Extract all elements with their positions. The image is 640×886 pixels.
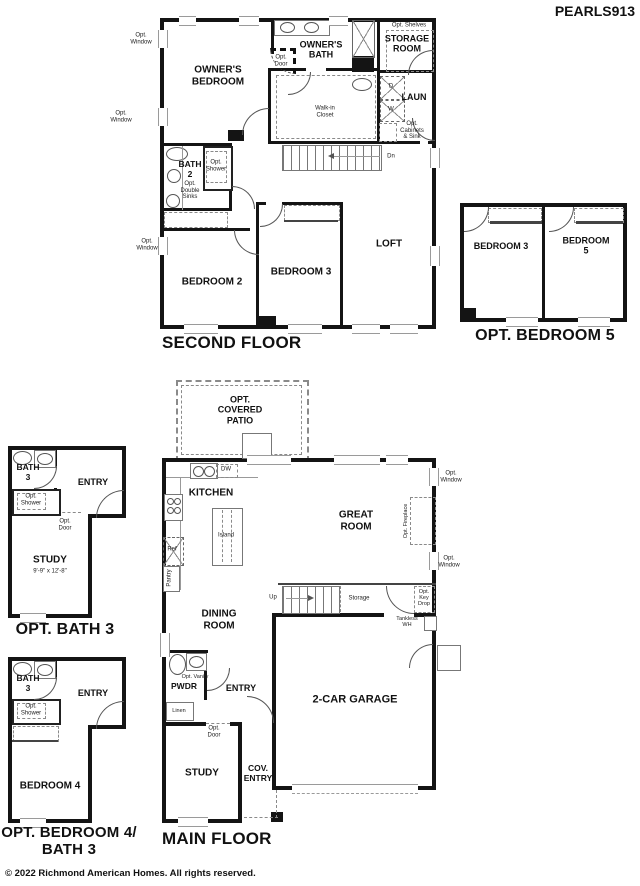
shower [352,20,375,58]
wall-chunk [256,316,276,325]
toilet [169,654,186,675]
floor-plan-sheet: PEARLS913 [0,0,640,886]
room-label-study: STUDY [185,767,219,779]
window [430,148,440,168]
room-label-entry: ENTRY [78,477,108,487]
window [178,817,208,827]
room-label-walk-in-closet: Walk-in Closet [315,105,335,118]
room-label-opt-covered-patio: OPT. COVERED PATIO [218,394,263,425]
garage-door-opening [292,784,418,794]
label-opt-window: Opt. Window [438,555,459,568]
room-label-bedroom-5: BEDROOM 5 [559,236,613,257]
door-arc [242,108,269,135]
wall-segment [160,18,164,329]
door-arc [464,207,489,232]
room-label-garage: 2-CAR GARAGE [313,694,398,707]
lite-segment [286,598,308,599]
door-arc [549,207,574,232]
thin-segment [490,221,542,224]
oval-segment [167,507,174,514]
plan-title: PEARLS913 [470,3,635,19]
wall-segment [428,141,436,144]
wall-segment [230,722,242,726]
door-arc [409,644,433,668]
room-label-owners-bedroom: OWNER'S BEDROOM [192,65,244,88]
lite-segment [334,156,380,157]
room-label-bedroom-3: BEDROOM 3 [474,241,529,251]
oval-segment [174,507,181,514]
room-label-bath-3: BATH 3 [17,463,40,483]
window [390,324,418,334]
opt-cabinets-outline [379,123,397,142]
bedroom2-closet [164,212,228,228]
wall-segment [164,208,232,211]
caption-opt-bedroom-4: OPT. BEDROOM 4/ BATH 3 [0,825,138,858]
door-arc [234,230,259,255]
window [158,237,168,255]
wall-segment [268,141,420,144]
room-label-owners-bath: OWNER'S BATH [300,40,343,61]
room-label-powder: PWDR [171,682,197,692]
caption-second-floor: SECOND FLOOR [162,333,301,353]
window [578,317,610,327]
room-label-loft: LOFT [376,238,402,250]
label-washer: W [388,107,394,114]
wall-segment [272,613,276,790]
caption-main-floor: MAIN FLOOR [162,829,272,849]
room-label-bath-3: BATH 3 [17,674,40,694]
sink [280,22,295,33]
cov-entry-dash [244,817,278,819]
wall-chunk [460,308,476,318]
window [430,246,440,266]
window [160,633,170,657]
dashv-segment [340,586,342,612]
window [334,455,380,465]
door-arc [260,204,283,227]
label-refrigerator: Ref [167,547,176,554]
window [158,108,168,126]
room-label-laundry: LAUN [402,92,427,102]
tankless-wh-box [424,616,437,631]
label-opt-shower: Opt. Shower [21,703,41,716]
wall-segment [88,725,92,823]
room-label-entry: ENTRY [78,688,108,698]
oval-segment [174,498,181,505]
label-opt-shower: Opt. Shower [21,493,41,506]
door-arc [386,586,414,614]
window [329,16,348,26]
wall-segment [256,202,259,325]
sink [166,194,180,208]
label-opt-fireplace: Opt. Fireplace [403,504,409,539]
label-opt-window: Opt. Window [440,470,461,483]
wall-segment [8,446,12,618]
label-opt-cabinets-sink: Opt. Cabinets & Sink [400,121,424,141]
room-label-kitchen: KITCHEN [189,487,233,499]
window [179,16,196,26]
label-dryer: D [389,84,393,91]
caption-opt-bath-3: OPT. BATH 3 [6,621,124,639]
window [429,468,439,486]
cov-entry-dash [276,790,278,818]
room-label-bedroom-3: BEDROOM 3 [271,266,332,278]
room-label-entry: ENTRY [226,683,256,693]
wall-segment [8,446,126,450]
thin-segment [284,220,338,222]
window [506,317,538,327]
window [158,30,168,48]
room-label-cov-entry: COV. ENTRY [244,764,273,784]
label-opt-window: Opt. Window [110,110,131,123]
room-label-bedroom-4: BEDROOM 4 [20,780,81,792]
window [352,324,380,334]
bedroom3-closet [284,205,340,221]
front-door-arc [96,490,124,518]
wall-segment [238,722,242,823]
room-label-bedroom-2: BEDROOM 2 [182,276,243,288]
room-label-great-room: GREAT ROOM [339,510,373,533]
wall-segment [88,514,92,618]
label-opt-vanity: Opt. Vanity [182,674,209,680]
patio-slider [247,455,291,465]
oval-segment [193,466,204,477]
label-down: Dn [387,154,395,161]
wall-segment [340,202,343,325]
caption-opt-bedroom-5: OPT. BEDROOM 5 [460,327,630,345]
label-up: Up [269,595,277,602]
garage-service-stoop [437,645,461,671]
wall-segment [162,722,206,726]
label-opt-shower: Opt. Shower [206,159,226,172]
label-storage: Storage [348,596,369,603]
label-linen: Linen [172,708,185,714]
wall-segment [542,203,545,322]
front-door-arc [247,696,274,723]
label-opt-door: Opt. Door [58,518,71,531]
thin-segment [12,740,58,742]
oval-segment [189,656,204,668]
label-opt-shelves: Opt. Shelves [392,23,426,30]
down-arrow [328,153,334,159]
window [386,455,408,465]
room-label-storage-room: STORAGE ROOM [385,34,429,55]
label-opt-door: Opt. Door [207,725,220,738]
label-opt-window: Opt. Window [130,32,151,45]
label-dishwasher: DW [221,467,231,474]
label-study-dimensions: 9'-9" x 12'-8" [33,569,67,576]
room-label-study: STUDY [33,554,67,566]
oval-segment [204,466,215,477]
label-opt-key-drop: Opt. Key Drop [418,589,430,607]
label-opt-double-sinks: Opt. Double Sinks [180,181,199,201]
door-arc [232,186,255,209]
label-tankless-wh: Tankless WH [396,616,417,628]
copyright: © 2022 Richmond American Homes. All righ… [5,868,256,879]
wall-segment [8,657,126,661]
sink [304,22,319,33]
up-arrow [308,595,314,601]
window [239,16,259,26]
wall-chunk [352,56,374,72]
label-opt-window: Opt. Window [136,238,157,251]
thin-segment [278,583,436,585]
room-label-dining-room: DINING ROOM [202,609,237,632]
thin-segment [576,221,623,224]
oval-segment [167,498,174,505]
label-opt-door: Opt. Door [274,54,287,67]
opt-fireplace-outline [410,497,436,545]
room-label-bath-2: BATH 2 [179,160,202,180]
front-door-arc [96,701,124,729]
label-island: Island [218,533,234,540]
label-pantry: Pantry [167,569,174,586]
